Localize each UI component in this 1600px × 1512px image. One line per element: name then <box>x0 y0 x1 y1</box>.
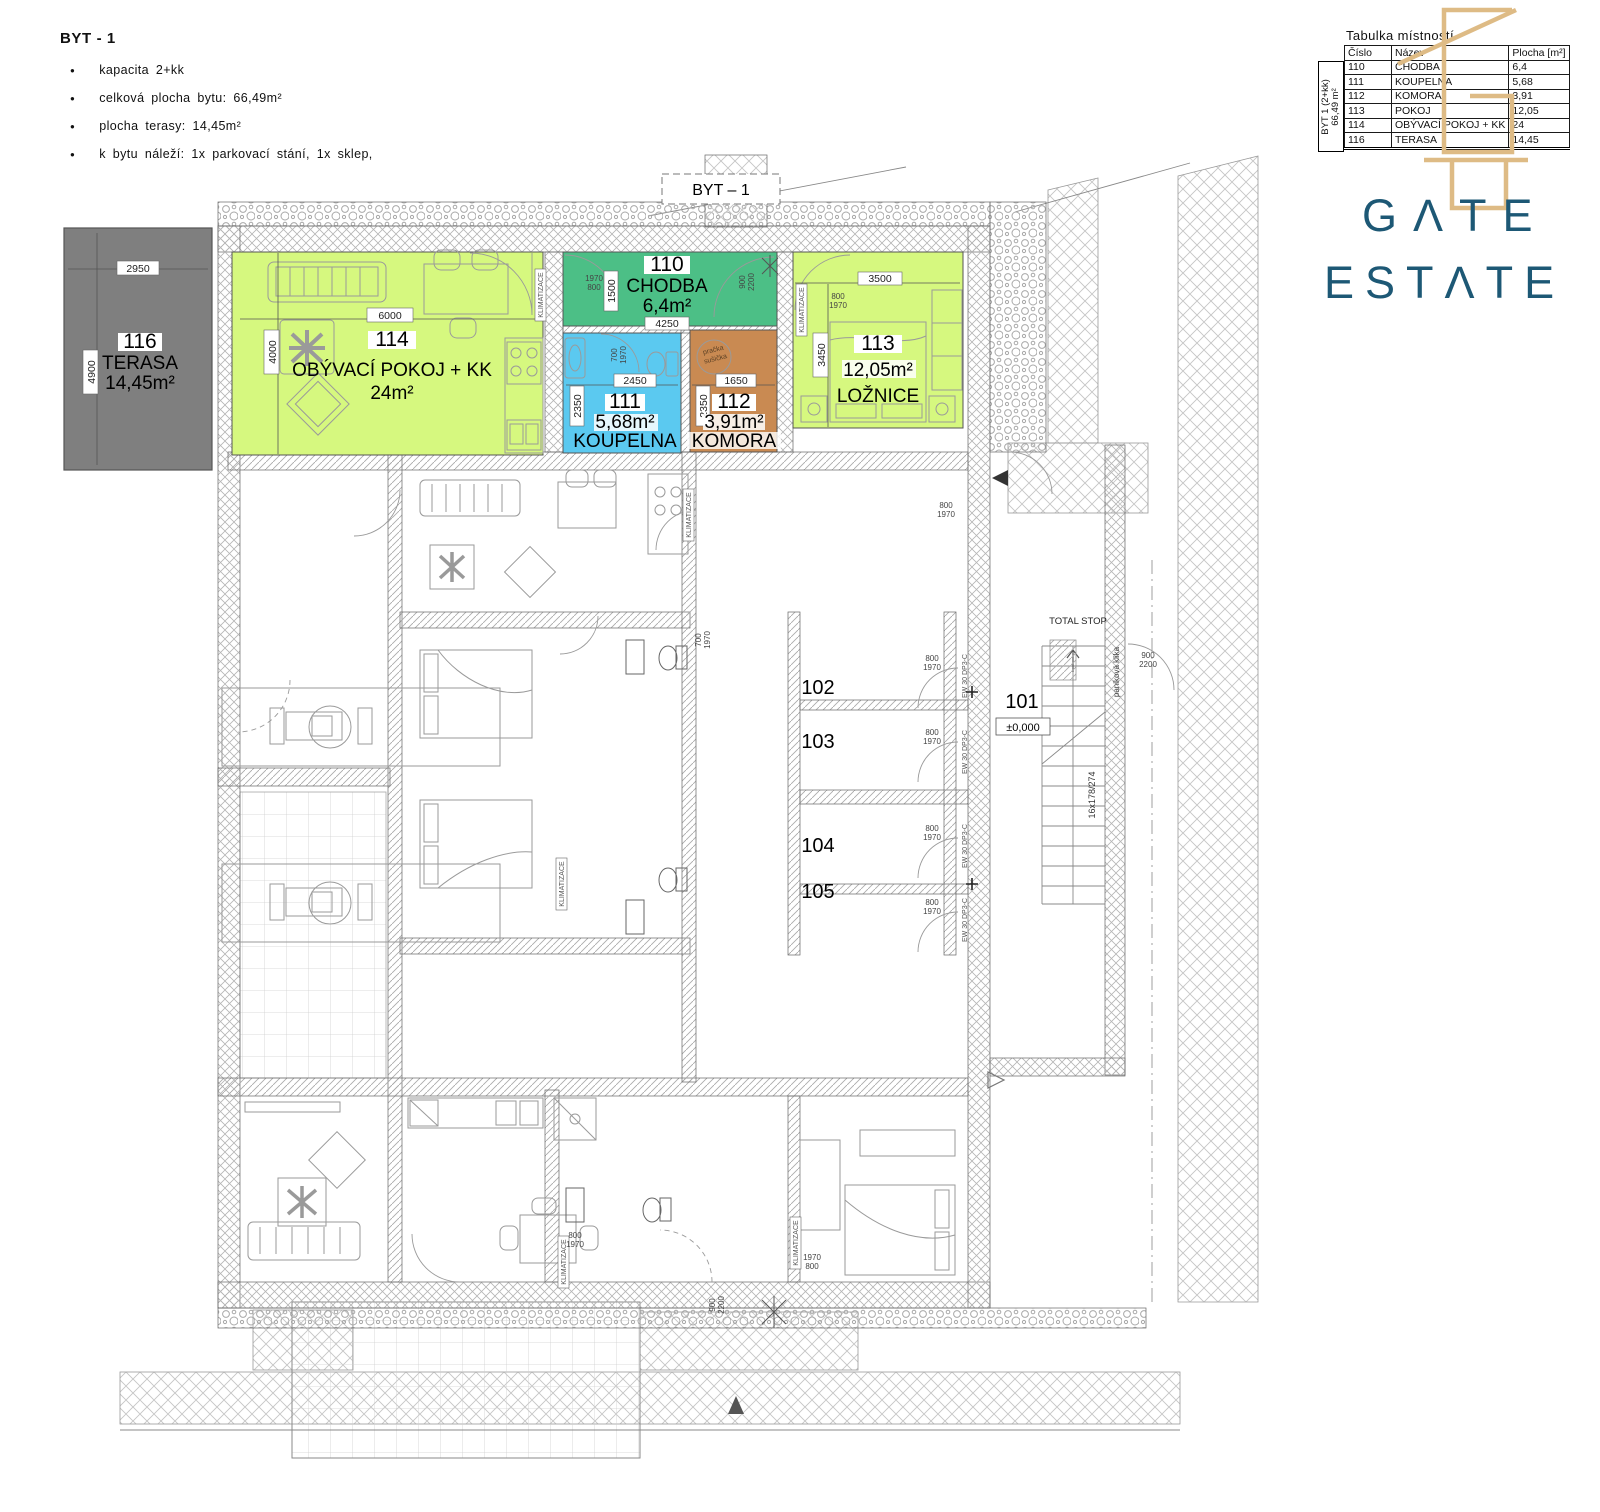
klimatizace-label: KLIMATIZACE <box>556 858 567 910</box>
door-dim: 800 <box>925 824 939 833</box>
door-dim: 900 <box>738 275 747 289</box>
dim-koupelna-w: 2450 <box>623 375 647 387</box>
svg-text:EW 30 DP3-C: EW 30 DP3-C <box>962 730 969 774</box>
note-includes: ●k bytu náleží: 1x parkovací stání, 1x s… <box>60 147 373 161</box>
room-name: KOMORA <box>692 431 777 452</box>
door-dim: 1970 <box>923 833 941 842</box>
door-dim: 800 <box>925 654 939 663</box>
room-number: 114 <box>375 328 409 351</box>
klimatizace-label: KLIMATIZACE <box>790 1217 801 1269</box>
room-number: 110 <box>650 253 683 276</box>
door-dim: 800 <box>587 283 601 292</box>
room-name: TERASA <box>102 353 178 374</box>
unit-label: BYT – 1 <box>692 182 750 199</box>
room-loznice: 3500 3450 800 1970 KLIMATIZACE 113 12,05… <box>793 252 963 428</box>
door-dim: 1970 <box>923 663 941 672</box>
total-stop-label: TOTAL STOP <box>1049 616 1107 627</box>
note-total-area: ●celková plocha bytu: 66,49m² <box>60 91 373 105</box>
elevation-label: ±0,000 <box>1006 722 1040 734</box>
dim-terasa-w: 2950 <box>126 263 150 275</box>
entry-arrow-icon <box>992 470 1008 486</box>
room-area: 12,05m² <box>843 360 913 381</box>
dim-komora-w: 1650 <box>724 375 748 387</box>
door-dim: 800 <box>805 1262 819 1271</box>
bullet-icon: ● <box>70 122 75 131</box>
svg-text:2200: 2200 <box>717 1296 726 1314</box>
door-dim: 800 <box>925 728 939 737</box>
door-dim: 1970 <box>937 510 955 519</box>
dim-koupelna-h: 2350 <box>572 394 584 418</box>
note-terrace-area: ●plocha terasy: 14,45m² <box>60 119 373 133</box>
svg-text:700: 700 <box>694 633 703 647</box>
floor-plan-svg: BYT – 1 2950 4900 116 TERASA 14,45m² <box>0 0 1600 1512</box>
dim-chodba-h: 1500 <box>606 279 618 303</box>
area-number-103: 103 <box>801 731 834 753</box>
svg-text:EW 30 DP3-C: EW 30 DP3-C <box>962 824 969 868</box>
unit-title: BYT - 1 <box>60 30 373 47</box>
svg-text:KLIMATIZACE: KLIMATIZACE <box>793 1220 800 1266</box>
svg-text:1970: 1970 <box>703 631 712 649</box>
dim-chodba-w: 4250 <box>655 318 679 330</box>
room-area: 3,91m² <box>704 412 763 433</box>
room-chodba: 110 CHODBA 6,4m² 4250 1500 1970 800 900 … <box>563 252 778 330</box>
logo-g-stroke <box>1444 10 1512 152</box>
room-area: 5,68m² <box>595 412 654 433</box>
door-dim: 1970 <box>566 1240 584 1249</box>
klimatizace-label: KLIMATIZACE <box>683 489 694 541</box>
room-number: 116 <box>123 330 156 353</box>
staircase: TOTAL STOP paniková klika 900 2200 16x17… <box>996 616 1157 904</box>
door-mat <box>1050 640 1076 680</box>
wheelchair-icon <box>270 706 372 748</box>
room-area: 6,4m² <box>643 296 692 317</box>
room-number: 113 <box>861 332 894 355</box>
door-dim: 800 <box>925 898 939 907</box>
stair-steps-label: 16x178/274 <box>1087 771 1097 818</box>
logo-diagonal-stroke <box>1398 10 1516 64</box>
door-dim: 2200 <box>1139 660 1157 669</box>
door-dim: 800 <box>568 1231 582 1240</box>
door-dim: 900 <box>1141 651 1155 660</box>
door-dim: 800 <box>939 501 953 510</box>
bullet-icon: ● <box>70 150 75 159</box>
panic-handle-label: paniková klika <box>1112 646 1121 697</box>
room-number: 112 <box>717 390 750 413</box>
room-area: 24m² <box>370 383 413 404</box>
room-name: CHODBA <box>626 276 708 297</box>
room-obyvaci-pokoj: 6000 4000 114 OBÝVACÍ POKOJ + KK 24m² KL… <box>232 250 546 455</box>
room-terasa: 2950 4900 116 TERASA 14,45m² <box>64 228 212 470</box>
gate-logo-mark <box>1388 0 1548 222</box>
logo-word-estate: ESTΛTE <box>1324 257 1565 309</box>
door-dim: 1970 <box>829 301 847 310</box>
room-komora: pračka sušička 1650 2350 112 3,91m² KOMO… <box>687 330 781 452</box>
svg-text:KLIMATIZACE: KLIMATIZACE <box>799 287 806 333</box>
dim-living-w: 6000 <box>378 310 402 322</box>
svg-text:900: 900 <box>708 1298 717 1312</box>
area-number-102: 102 <box>801 677 834 699</box>
klimatizace-label: KLIMATIZACE <box>796 284 807 336</box>
room-table-side-label: BYT 1 (2+kk) 66,49 m² <box>1318 61 1344 152</box>
unit-notes: BYT - 1 ●kapacita 2+kk ●celková plocha b… <box>60 30 373 175</box>
dim-living-h: 4000 <box>267 340 279 364</box>
room-name: OBÝVACÍ POKOJ + KK <box>292 360 492 381</box>
door-dim: 700 <box>610 348 619 362</box>
bullet-icon: ● <box>70 66 75 75</box>
area-number-101: 101 <box>1005 691 1038 713</box>
dim-loznice-w: 3500 <box>868 273 892 285</box>
door-dim: 1970 <box>585 274 603 283</box>
unit-label-box: BYT – 1 <box>662 174 780 204</box>
svg-text:KLIMATIZACE: KLIMATIZACE <box>538 272 545 318</box>
room-name: KOUPELNA <box>573 431 677 452</box>
room-number: 111 <box>609 390 641 413</box>
door-dim: 800 <box>831 292 845 301</box>
note-capacity: ●kapacita 2+kk <box>60 63 373 77</box>
klimatizace-label: KLIMATIZACE <box>535 269 546 321</box>
bullet-icon: ● <box>70 94 75 103</box>
door-dim: 1970 <box>923 737 941 746</box>
door-dim: 1970 <box>923 907 941 916</box>
dim-terasa-h: 4900 <box>86 360 98 384</box>
room-name: LOŽNICE <box>837 385 919 407</box>
area-number-105: 105 <box>801 881 834 903</box>
room-area: 14,45m² <box>105 373 175 394</box>
dim-loznice-h: 3450 <box>816 343 828 367</box>
door-dim: 1970 <box>619 346 628 364</box>
door-dim: 2200 <box>747 273 756 291</box>
svg-text:KLIMATIZACE: KLIMATIZACE <box>559 861 566 907</box>
logo-word-gate: GΛTE <box>1362 190 1549 242</box>
svg-text:EW 30 DP3-C: EW 30 DP3-C <box>962 898 969 942</box>
room-koupelna: 2450 2350 700 1970 111 5,68m² KOUPELNA <box>563 333 681 453</box>
svg-text:KLIMATIZACE: KLIMATIZACE <box>686 492 693 538</box>
door-dim: 1970 <box>803 1253 821 1262</box>
area-number-104: 104 <box>801 835 834 857</box>
